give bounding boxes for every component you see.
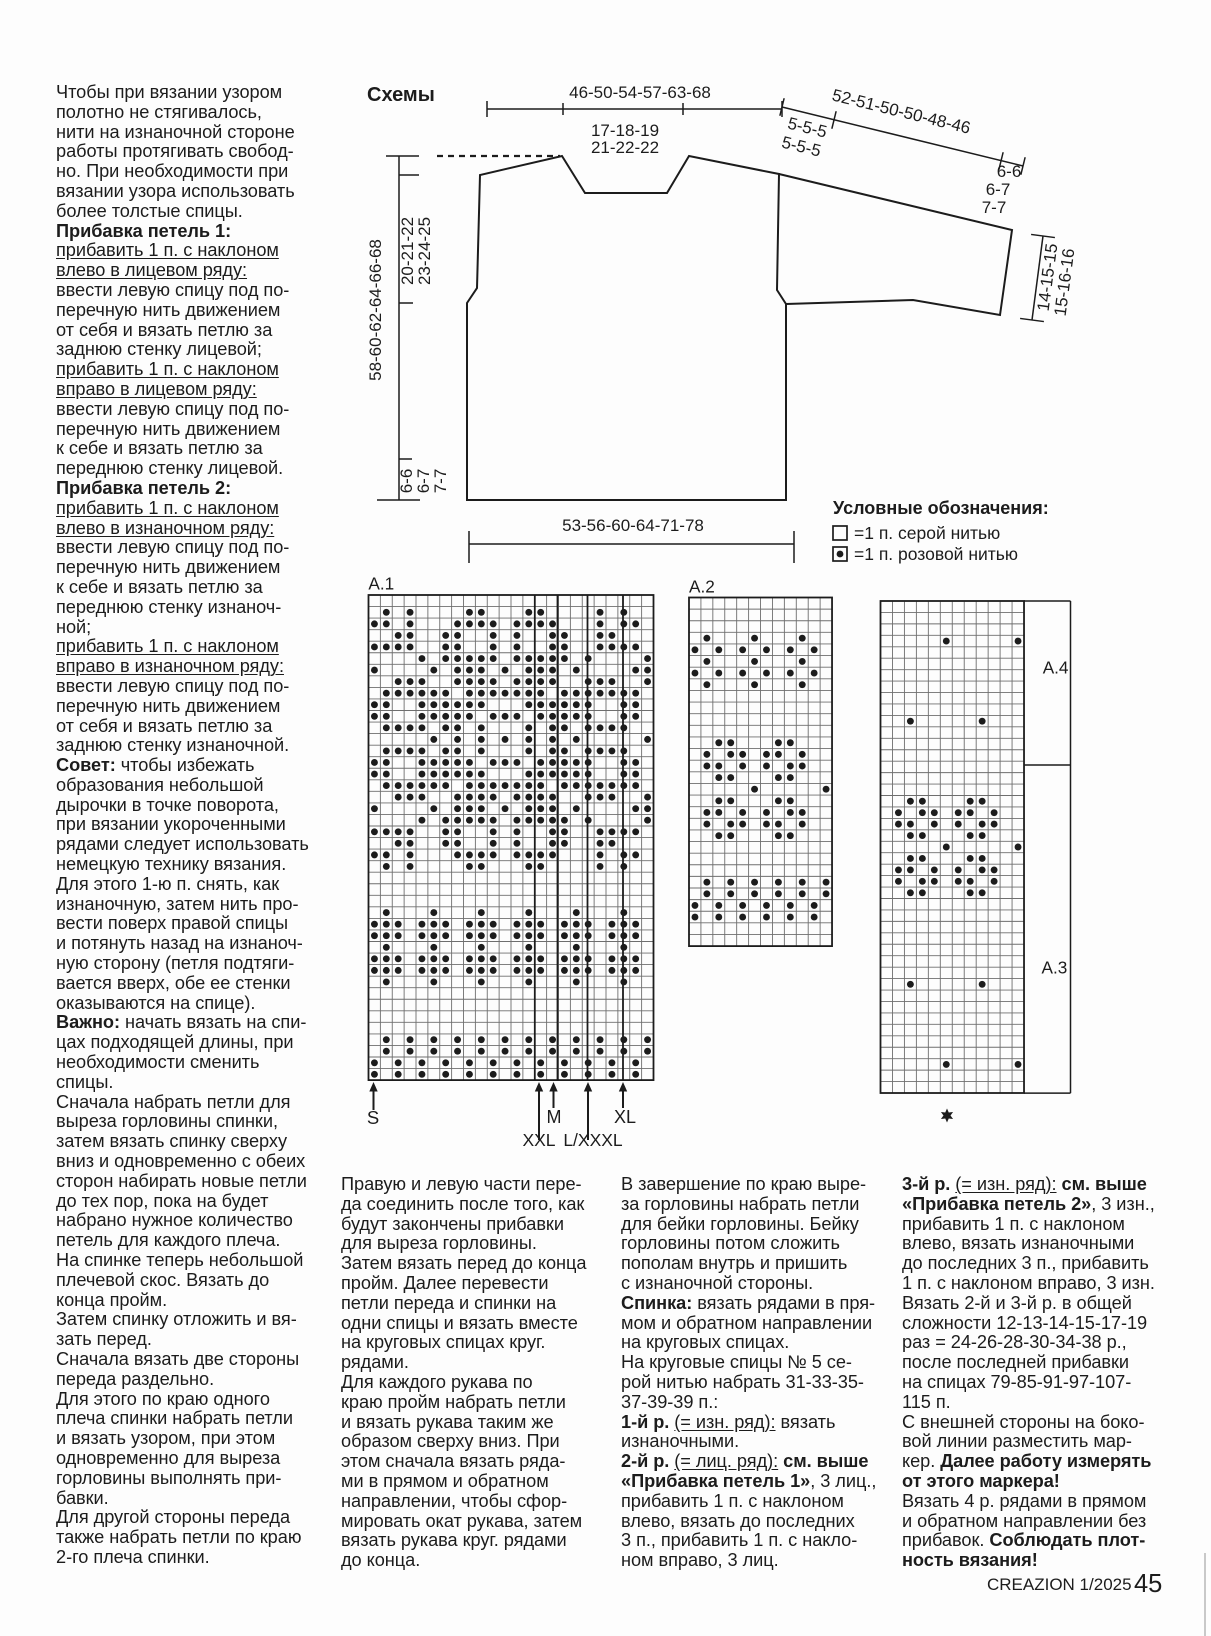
svg-text:=1 п. розовой нитью: =1 п. розовой нитью: [854, 544, 1018, 564]
svg-text:XL: XL: [614, 1107, 636, 1127]
svg-text:Условные обозначения:: Условные обозначения:: [833, 498, 1049, 518]
svg-text:7-7: 7-7: [982, 198, 1007, 217]
svg-text:=1 п. серой нитью: =1 п. серой нитью: [854, 523, 1000, 543]
svg-text:53-56-60-64-71-78: 53-56-60-64-71-78: [562, 516, 704, 535]
svg-text:46-50-54-57-63-68: 46-50-54-57-63-68: [569, 83, 711, 102]
svg-text:23-24-25: 23-24-25: [415, 217, 434, 285]
svg-text:7-7: 7-7: [431, 469, 450, 494]
svg-text:M: M: [547, 1107, 562, 1127]
svg-text:XXL: XXL: [522, 1130, 555, 1150]
svg-text:6-7: 6-7: [986, 180, 1011, 199]
svg-text:A.2: A.2: [689, 577, 715, 597]
svg-text:A.4: A.4: [1043, 658, 1069, 678]
svg-text:A.1: A.1: [368, 574, 394, 594]
svg-text:L/XXXL: L/XXXL: [563, 1130, 623, 1150]
svg-text:52-51-50-50-48-46: 52-51-50-50-48-46: [830, 86, 972, 138]
svg-text:S: S: [367, 1107, 379, 1128]
svg-text:6-6: 6-6: [997, 162, 1022, 181]
svg-text:Схемы: Схемы: [367, 84, 435, 106]
svg-text:A.3: A.3: [1042, 958, 1068, 978]
svg-text:58-60-62-64-66-68: 58-60-62-64-66-68: [366, 239, 385, 381]
svg-text:21-22-22: 21-22-22: [591, 138, 659, 157]
